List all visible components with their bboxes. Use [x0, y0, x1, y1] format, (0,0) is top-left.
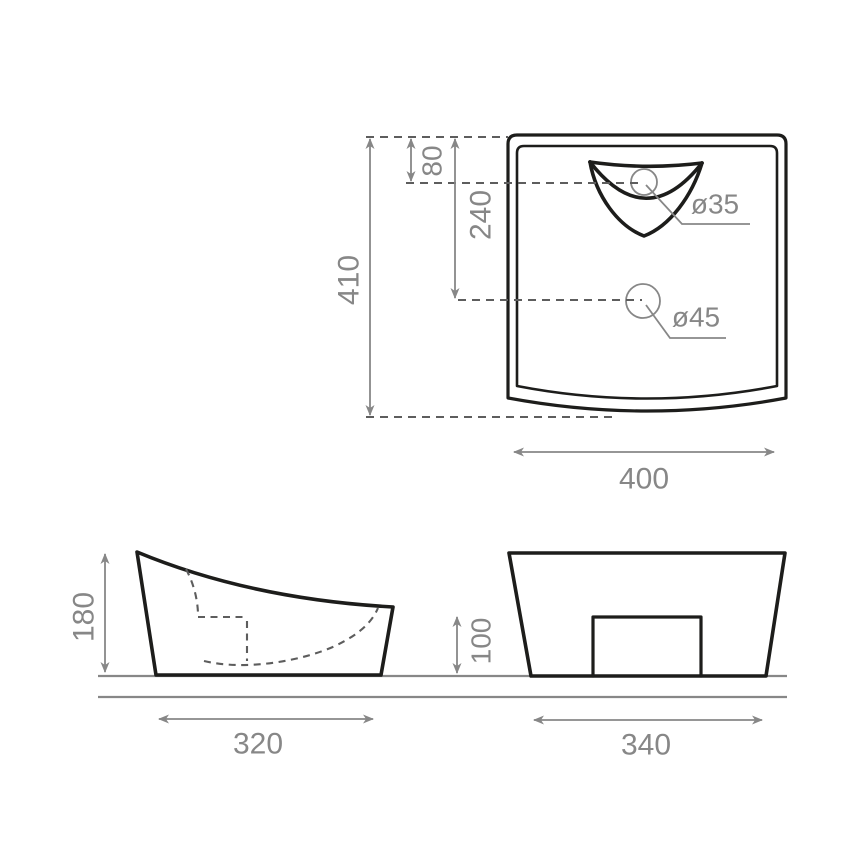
tap-hole-diameter-label: ø35 [691, 189, 739, 220]
dimension-label-340: 340 [621, 729, 671, 762]
washbasin-drawing-svg: ø35 ø45 410 80 240 400 [0, 0, 868, 868]
top-view: ø35 ø45 410 80 240 400 [333, 135, 787, 496]
recess-top-edge [590, 162, 702, 166]
top-view-outer-rim [508, 135, 786, 411]
top-view-extension-lines [366, 137, 642, 417]
top-view-inner-rim [517, 146, 777, 399]
side-view-hidden-lines [186, 569, 378, 665]
ground-lines [98, 676, 787, 697]
dimension-label-100: 100 [466, 618, 497, 665]
technical-drawing-page: ø35 ø45 410 80 240 400 [0, 0, 868, 868]
front-view-pedestal-notch [593, 617, 701, 676]
drain-hole-diameter-label: ø45 [672, 302, 720, 333]
dimension-label-410: 410 [333, 255, 366, 305]
front-view: 100 340 [457, 553, 785, 762]
side-view: 180 320 [68, 552, 394, 761]
side-view-dimensions: 180 320 [68, 554, 374, 761]
front-view-outline [509, 553, 785, 676]
dimension-label-400: 400 [619, 463, 669, 496]
hidden-inner-wall-curve [186, 569, 198, 613]
hidden-basin-bottom-curve [204, 608, 378, 665]
dimension-label-240: 240 [465, 190, 498, 240]
side-view-outline [137, 552, 393, 675]
front-view-dimensions: 100 340 [457, 617, 762, 762]
dimension-label-180: 180 [68, 592, 101, 642]
dimension-label-80: 80 [417, 145, 448, 176]
dimension-label-320: 320 [233, 728, 283, 761]
